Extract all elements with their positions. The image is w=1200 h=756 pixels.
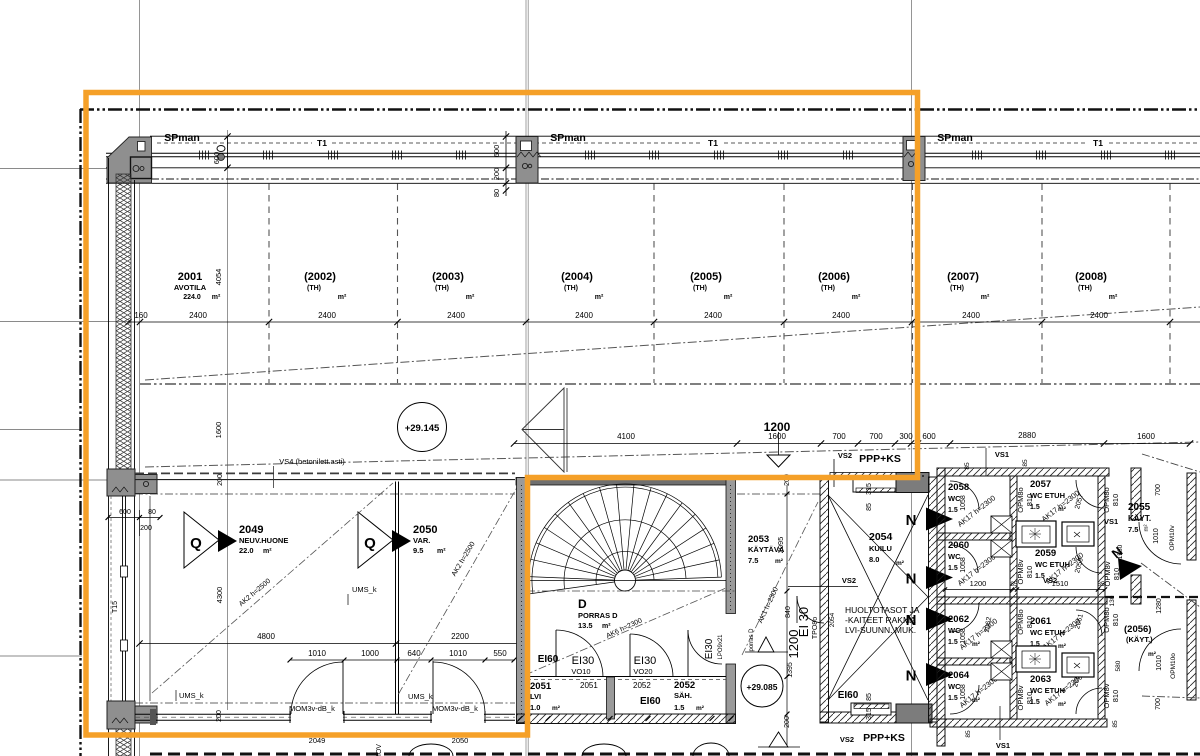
svg-text:600: 600 xyxy=(119,509,131,516)
svg-text:SÄH.: SÄH. xyxy=(674,691,692,700)
svg-text:OPM8o: OPM8o xyxy=(1102,607,1111,632)
svg-text:2400: 2400 xyxy=(318,311,336,320)
svg-text:T15: T15 xyxy=(112,601,119,613)
svg-text:1200: 1200 xyxy=(786,630,801,659)
svg-text:85: 85 xyxy=(1097,581,1105,588)
svg-text:224.0: 224.0 xyxy=(183,294,201,301)
svg-text:m²: m² xyxy=(552,705,561,712)
svg-text:LPO9x21: LPO9x21 xyxy=(718,634,724,660)
svg-text:2062: 2062 xyxy=(948,614,969,625)
svg-text:2880: 2880 xyxy=(1018,431,1036,440)
svg-text:1058: 1058 xyxy=(960,557,967,573)
svg-text:2400: 2400 xyxy=(1090,311,1108,320)
svg-text:2049: 2049 xyxy=(239,524,263,536)
svg-text:(KÄYT.): (KÄYT.) xyxy=(1126,635,1153,644)
svg-text:PPP+KS: PPP+KS xyxy=(863,732,905,744)
svg-text:SPman: SPman xyxy=(550,132,586,144)
svg-text:2060: 2060 xyxy=(948,540,969,551)
svg-text:(2056): (2056) xyxy=(1124,624,1151,635)
svg-text:VS1: VS1 xyxy=(1104,517,1118,526)
svg-text:LVI: LVI xyxy=(530,692,541,701)
svg-text:85: 85 xyxy=(1112,720,1119,728)
svg-text:OPM8v: OPM8v xyxy=(1102,683,1111,708)
svg-text:VS2: VS2 xyxy=(838,451,852,460)
svg-text:1010: 1010 xyxy=(1153,528,1160,544)
svg-text:810: 810 xyxy=(1112,568,1121,581)
svg-text:m²: m² xyxy=(896,560,905,567)
svg-text:810: 810 xyxy=(1025,692,1034,705)
svg-text:2001: 2001 xyxy=(178,271,202,283)
svg-text:m²: m² xyxy=(466,294,475,301)
svg-text:840: 840 xyxy=(785,606,792,618)
svg-text:T1: T1 xyxy=(708,138,718,148)
svg-text:(TH): (TH) xyxy=(693,285,707,292)
svg-text:PPP+KS: PPP+KS xyxy=(859,453,901,465)
svg-text:1.5: 1.5 xyxy=(948,695,958,702)
svg-text:1.5: 1.5 xyxy=(948,639,958,646)
svg-text:2053: 2053 xyxy=(748,534,769,545)
svg-text:N: N xyxy=(906,571,917,588)
svg-text:+29.085: +29.085 xyxy=(747,682,778,692)
svg-text:22.0: 22.0 xyxy=(239,546,254,555)
svg-text:85: 85 xyxy=(964,462,971,470)
svg-text:m²: m² xyxy=(263,548,272,555)
svg-text:TPO8o: TPO8o xyxy=(812,617,819,639)
svg-text:(2002): (2002) xyxy=(304,271,336,283)
svg-text:(2006): (2006) xyxy=(818,271,850,283)
svg-text:2063: 2063 xyxy=(1030,674,1051,685)
svg-text:KUILU: KUILU xyxy=(869,544,892,553)
svg-text:700: 700 xyxy=(1155,484,1162,496)
svg-text:m²: m² xyxy=(338,294,347,301)
svg-text:(2004): (2004) xyxy=(561,271,593,283)
svg-text:80: 80 xyxy=(492,189,501,197)
svg-text:OPM10v: OPM10v xyxy=(1169,525,1176,551)
svg-text:1600: 1600 xyxy=(214,422,223,439)
svg-text:2400: 2400 xyxy=(704,311,722,320)
svg-text:m²: m² xyxy=(1109,294,1118,301)
svg-text:600: 600 xyxy=(922,432,936,441)
svg-text:810: 810 xyxy=(1025,616,1034,629)
svg-text:4800: 4800 xyxy=(257,632,275,641)
svg-text:WC ETUH: WC ETUH xyxy=(1030,491,1065,500)
svg-text:810: 810 xyxy=(1025,494,1034,507)
svg-text:MOM3v-dB_k: MOM3v-dB_k xyxy=(289,704,335,713)
svg-text:PORRAS D: PORRAS D xyxy=(578,611,618,620)
svg-text:N: N xyxy=(906,512,917,529)
svg-text:(2007): (2007) xyxy=(947,271,979,283)
svg-text:(2005): (2005) xyxy=(690,271,722,283)
svg-text:(TH): (TH) xyxy=(564,285,578,292)
svg-text:T1: T1 xyxy=(1093,138,1103,148)
svg-text:2095: 2095 xyxy=(776,537,785,554)
svg-text:T1: T1 xyxy=(317,138,327,148)
svg-text:VO20: VO20 xyxy=(633,667,652,676)
svg-text:130: 130 xyxy=(1109,595,1116,606)
svg-text:600: 600 xyxy=(492,145,501,158)
svg-text:2400: 2400 xyxy=(962,311,980,320)
svg-text:KÄYT.: KÄYT. xyxy=(1128,514,1151,523)
svg-text:OPM8v: OPM8v xyxy=(1016,685,1025,710)
svg-text:MOV: MOV xyxy=(376,744,383,756)
svg-text:1010: 1010 xyxy=(1156,655,1163,671)
svg-text:810: 810 xyxy=(1111,614,1120,627)
svg-text:2055: 2055 xyxy=(1128,502,1151,513)
svg-text:810: 810 xyxy=(1111,494,1120,507)
svg-text:m²: m² xyxy=(981,294,990,301)
svg-text:D: D xyxy=(578,597,587,611)
svg-text:7.5: 7.5 xyxy=(1128,525,1138,534)
svg-text:1200: 1200 xyxy=(970,579,987,588)
svg-text:200: 200 xyxy=(492,168,501,181)
svg-text:700: 700 xyxy=(832,432,846,441)
svg-text:m²: m² xyxy=(1058,701,1067,708)
svg-text:N: N xyxy=(906,612,917,629)
svg-text:2057: 2057 xyxy=(1030,479,1051,490)
svg-text:N: N xyxy=(906,668,917,685)
svg-text:600: 600 xyxy=(212,152,221,165)
svg-text:Q: Q xyxy=(190,535,202,552)
svg-text:VS1: VS1 xyxy=(996,741,1010,750)
svg-text:VS2: VS2 xyxy=(840,735,854,744)
svg-text:EI60: EI60 xyxy=(640,696,661,707)
svg-text:1058: 1058 xyxy=(960,495,967,511)
svg-text:315: 315 xyxy=(866,708,873,720)
svg-text:2051: 2051 xyxy=(580,681,598,690)
svg-text:2400: 2400 xyxy=(189,311,207,320)
svg-text:(TH): (TH) xyxy=(435,285,449,292)
svg-text:1200: 1200 xyxy=(764,420,791,434)
svg-text:200: 200 xyxy=(140,525,152,532)
svg-text:+29.145: +29.145 xyxy=(405,423,440,434)
svg-text:85: 85 xyxy=(866,693,873,701)
svg-text:(TH): (TH) xyxy=(307,285,321,292)
svg-text:8.0: 8.0 xyxy=(869,555,879,564)
svg-text:85: 85 xyxy=(866,503,873,511)
svg-text:porras D: porras D xyxy=(749,628,755,652)
svg-text:700: 700 xyxy=(869,432,883,441)
svg-text:2059: 2059 xyxy=(1035,548,1056,559)
svg-text:1.5: 1.5 xyxy=(674,703,684,712)
svg-text:1510: 1510 xyxy=(1052,579,1069,588)
svg-text:2049: 2049 xyxy=(309,736,326,745)
svg-text:2050: 2050 xyxy=(452,736,469,745)
svg-text:OPM8o: OPM8o xyxy=(1102,487,1111,512)
svg-text:1000: 1000 xyxy=(361,649,379,658)
svg-text:4054: 4054 xyxy=(214,269,223,286)
svg-text:MOM3v-dB_k: MOM3v-dB_k xyxy=(432,704,478,713)
svg-text:(TH): (TH) xyxy=(821,285,835,292)
svg-text:2400: 2400 xyxy=(447,311,465,320)
svg-text:1580: 1580 xyxy=(1117,544,1124,559)
svg-text:OPM8o: OPM8o xyxy=(1016,609,1025,634)
svg-text:m²: m² xyxy=(1144,525,1150,532)
svg-text:EI60: EI60 xyxy=(838,690,859,701)
svg-text:2051: 2051 xyxy=(530,681,552,692)
svg-text:UMS_k: UMS_k xyxy=(352,585,377,594)
svg-text:m²: m² xyxy=(1058,643,1067,650)
svg-text:EI30: EI30 xyxy=(704,638,715,659)
svg-text:UMS_k: UMS_k xyxy=(408,692,433,701)
svg-text:580: 580 xyxy=(1115,660,1122,671)
svg-text:2050: 2050 xyxy=(413,524,437,536)
svg-text:m²: m² xyxy=(437,548,446,555)
svg-text:EI30: EI30 xyxy=(634,655,657,667)
svg-text:1.5: 1.5 xyxy=(948,565,958,572)
svg-text:SPman: SPman xyxy=(937,132,973,144)
svg-text:200: 200 xyxy=(216,710,223,722)
svg-text:VS2: VS2 xyxy=(842,576,856,585)
svg-text:7.5: 7.5 xyxy=(748,556,758,565)
svg-text:2400: 2400 xyxy=(575,311,593,320)
svg-text:1600: 1600 xyxy=(1137,432,1155,441)
svg-text:315: 315 xyxy=(866,483,873,495)
svg-text:80: 80 xyxy=(148,509,156,516)
svg-text:85: 85 xyxy=(1022,459,1029,467)
svg-text:2400: 2400 xyxy=(832,311,850,320)
svg-text:OPM8o: OPM8o xyxy=(1016,487,1025,512)
svg-text:2054: 2054 xyxy=(829,612,836,627)
svg-text:m²: m² xyxy=(212,294,221,301)
svg-text:160: 160 xyxy=(134,311,148,320)
svg-text:300: 300 xyxy=(899,432,913,441)
svg-text:m²: m² xyxy=(602,623,611,630)
svg-text:Q: Q xyxy=(364,535,376,552)
svg-text:4100: 4100 xyxy=(617,432,635,441)
svg-text:OPM10o: OPM10o xyxy=(1170,653,1177,679)
svg-text:UMS_k: UMS_k xyxy=(179,691,204,700)
svg-text:1280: 1280 xyxy=(1156,598,1163,614)
svg-text:9.5: 9.5 xyxy=(413,546,423,555)
svg-text:1010: 1010 xyxy=(449,649,467,658)
svg-text:13.5: 13.5 xyxy=(578,621,593,630)
svg-text:VS1: VS1 xyxy=(995,450,1009,459)
svg-text:200: 200 xyxy=(784,716,791,728)
svg-text:m²: m² xyxy=(696,705,705,712)
svg-text:m²: m² xyxy=(724,294,733,301)
svg-text:m²: m² xyxy=(852,294,861,301)
svg-text:(2003): (2003) xyxy=(432,271,464,283)
svg-text:AVOTILA: AVOTILA xyxy=(174,283,207,292)
svg-text:SPman: SPman xyxy=(164,132,200,144)
svg-text:85: 85 xyxy=(1010,581,1018,588)
svg-text:NEUV.HUONE: NEUV.HUONE xyxy=(239,536,288,545)
svg-text:85: 85 xyxy=(965,730,972,738)
svg-text:810: 810 xyxy=(1111,690,1120,703)
svg-text:VO10: VO10 xyxy=(571,667,590,676)
svg-text:VS4 (betonilett.asti): VS4 (betonilett.asti) xyxy=(279,457,345,466)
svg-text:2200: 2200 xyxy=(451,632,469,641)
svg-text:(2008): (2008) xyxy=(1075,271,1107,283)
svg-text:m²: m² xyxy=(775,558,784,565)
svg-text:EI60: EI60 xyxy=(538,654,559,665)
svg-text:1010: 1010 xyxy=(308,649,326,658)
svg-text:2054: 2054 xyxy=(869,531,893,543)
svg-text:640: 640 xyxy=(407,649,421,658)
svg-text:VAR.: VAR. xyxy=(413,536,430,545)
svg-text:EI30: EI30 xyxy=(572,655,595,667)
svg-text:2064: 2064 xyxy=(948,670,970,681)
svg-text:1.0: 1.0 xyxy=(530,703,540,712)
svg-text:(TH): (TH) xyxy=(950,285,964,292)
svg-text:(TH): (TH) xyxy=(1078,285,1092,292)
svg-text:2052: 2052 xyxy=(633,681,651,690)
svg-text:4300: 4300 xyxy=(215,587,224,604)
svg-text:1.5: 1.5 xyxy=(948,507,958,514)
svg-text:2058: 2058 xyxy=(948,482,969,493)
svg-text:2052: 2052 xyxy=(674,680,695,691)
svg-text:810: 810 xyxy=(1025,566,1034,579)
svg-text:550: 550 xyxy=(493,649,507,658)
svg-text:700: 700 xyxy=(1155,698,1162,710)
svg-text:m²: m² xyxy=(595,294,604,301)
